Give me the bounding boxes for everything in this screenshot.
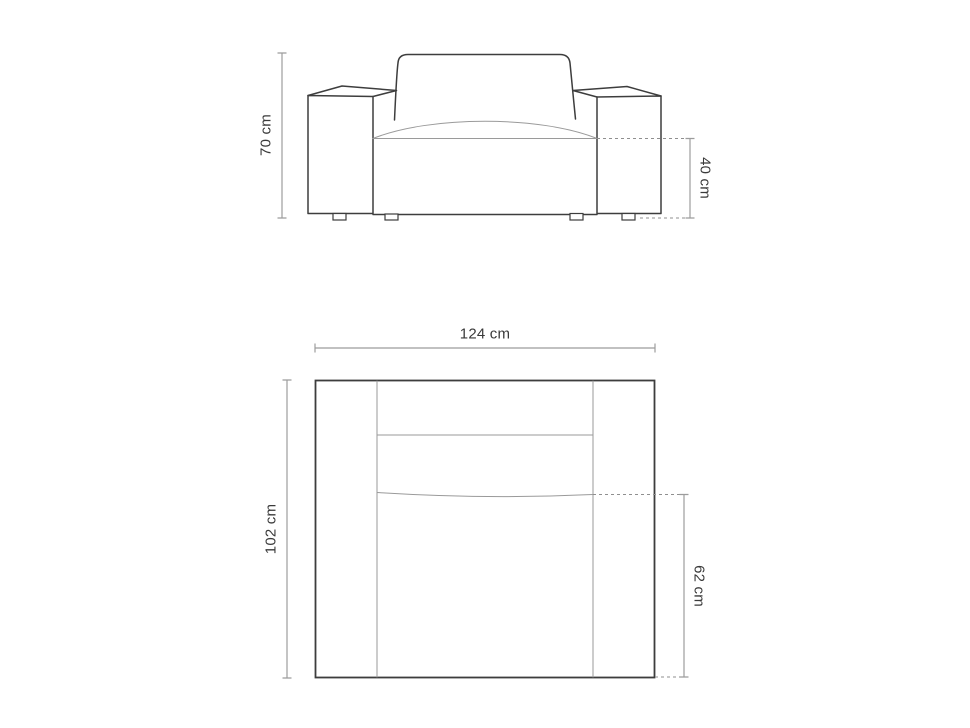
foot-icon — [570, 214, 583, 221]
foot-icon — [333, 214, 346, 221]
depth-dimension-label: 102 cm — [263, 504, 280, 554]
depth-dimension-line — [283, 380, 292, 678]
top-view-body-outline — [316, 381, 655, 678]
seat-depth-dimension-line — [680, 495, 689, 678]
seat-depth-dimension-label: 62 cm — [691, 565, 708, 607]
width-dimension-label: 124 cm — [460, 326, 510, 343]
backrest-outline — [395, 55, 576, 121]
seat-cushion-curve — [373, 121, 597, 138]
front-chair-outline — [308, 55, 661, 215]
diagram-svg: 70 cm 40 cm — [0, 0, 970, 728]
top-view: 124 cm 102 cm 62 cm — [263, 326, 708, 679]
seat-height-dimension-label: 40 cm — [697, 157, 714, 199]
product-dimension-diagram: 70 cm 40 cm — [0, 0, 970, 728]
front-projection-lines — [597, 139, 690, 219]
height-dimension-label: 70 cm — [258, 114, 275, 156]
foot-icon — [622, 214, 635, 221]
left-armrest-top — [308, 86, 397, 97]
front-view: 70 cm 40 cm — [258, 53, 714, 220]
seat-height-dimension-line — [686, 139, 695, 219]
right-armrest-top — [573, 87, 661, 98]
front-cushion-lines — [373, 121, 597, 138]
right-armrest-front — [597, 96, 661, 214]
front-dimension-lines — [278, 53, 695, 218]
left-armrest-front — [308, 96, 373, 214]
foot-icon — [385, 214, 398, 220]
height-dimension-line — [278, 53, 287, 218]
front-labels: 70 cm 40 cm — [258, 114, 714, 199]
width-dimension-line — [315, 344, 655, 353]
